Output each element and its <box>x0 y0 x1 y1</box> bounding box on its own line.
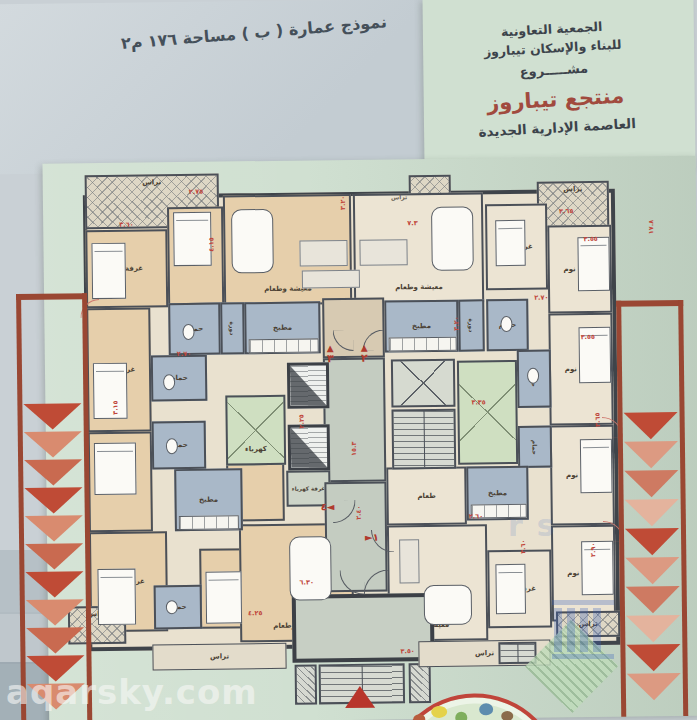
left-border-triangle <box>25 515 83 542</box>
dimension-label: ٧.٣ <box>407 219 418 227</box>
room-label-bathroom: حمام <box>520 428 550 466</box>
right-border-triangle <box>624 441 678 469</box>
dimension-label: ٢.٧٠ <box>534 294 548 302</box>
room-label-bathroom: حمام <box>154 423 205 468</box>
right-border-triangle <box>625 499 679 527</box>
plan-structure <box>288 424 331 471</box>
center-watermark-fragment: rs <box>508 508 569 543</box>
right-border-triangle <box>626 586 680 614</box>
unit-2-entry: ▲ ٢ <box>361 344 368 364</box>
right-border-triangle <box>624 470 678 498</box>
room-dining: طعام <box>386 467 467 526</box>
room-label-toilet: دورة <box>222 304 243 352</box>
left-border-triangle <box>24 487 82 514</box>
bed-icon <box>93 363 128 419</box>
bed-icon <box>495 564 526 614</box>
unit-number: ١ <box>373 532 379 543</box>
room-bathroom: حمام <box>152 421 207 470</box>
left-border-triangle <box>25 543 83 570</box>
entry-arrow-icon: ◄ <box>327 501 335 512</box>
right-border-triangle <box>625 528 679 556</box>
fixture-icon <box>500 316 512 332</box>
left-border-triangle <box>26 599 84 626</box>
plan-structure <box>287 362 330 409</box>
entry-arrow-icon: ► <box>365 532 373 543</box>
plan-structure <box>391 409 456 470</box>
right-border-triangle <box>624 412 678 440</box>
unit-1-entry: ١► <box>365 533 379 543</box>
main-entrance-arrow-icon <box>345 686 375 708</box>
dimension-label: ١٧.٨ <box>647 220 655 234</box>
plan-structure <box>323 358 387 483</box>
plan-structure <box>391 359 456 408</box>
unit-number: ٢ <box>361 352 368 365</box>
dining-table-icon <box>431 206 474 271</box>
fixture-icon <box>166 438 178 454</box>
bed-icon <box>495 220 526 266</box>
kitchen-counter-icon <box>389 337 457 352</box>
right-border-bar <box>616 300 683 307</box>
room-toilet: دورة <box>458 299 485 351</box>
bed-icon <box>94 443 137 496</box>
dimension-label: ١٥.٣ <box>350 442 358 456</box>
dimension-label: ٤.١٥ <box>207 237 215 251</box>
dimension-label: ٣.٥٥ <box>581 333 595 341</box>
room-label-bathroom: حمام <box>153 357 206 400</box>
bed-icon <box>581 541 614 595</box>
plan-structure <box>457 360 518 465</box>
dining-table-icon <box>289 536 332 601</box>
dimension-label: ٣.١٥ <box>111 400 119 414</box>
bed-icon <box>577 237 610 291</box>
right-border-triangle <box>627 673 681 701</box>
watermark-site: aqarsky.com <box>6 672 258 712</box>
room-label-terrace: تراس <box>391 193 407 200</box>
left-border-triangle <box>26 627 84 654</box>
left-border-triangle <box>24 459 82 486</box>
dimension-label: ٣.٦٥ <box>594 413 602 427</box>
room-label-dining: طعام <box>388 469 465 524</box>
room-label-electricity_room: غرفة كهرباء <box>288 472 328 504</box>
left-border-triangle <box>23 403 81 430</box>
room-bathroom: حمام <box>151 355 208 402</box>
room-label-bathroom: حمام <box>170 305 219 354</box>
unit-number: ٣ <box>327 352 334 365</box>
dimension-label: ٣.٣٥ <box>471 398 485 406</box>
room-label-terrace: تراس <box>153 644 285 670</box>
room-electricity: كهرباء <box>225 395 286 466</box>
plan-structure <box>409 663 431 703</box>
dimension-label: ٦.٣٠ <box>300 578 314 586</box>
room-bathroom: حمام <box>168 303 221 356</box>
sofa-icon <box>359 239 407 266</box>
sofa-icon <box>302 270 360 289</box>
left-border-triangle <box>24 431 82 458</box>
right-border-triangle <box>626 644 680 672</box>
plan-structure <box>295 664 317 704</box>
left-border-bar <box>16 293 87 300</box>
dimension-label: ٢.٦٠ <box>469 512 483 520</box>
dimension-label: ٢.٧٠ <box>177 350 191 358</box>
sofa-icon <box>399 539 420 583</box>
bed-icon <box>173 212 212 266</box>
dimension-label: ٣.٦٠ <box>119 221 133 229</box>
dimension-label: ٤.٢٥ <box>248 609 262 617</box>
room-terrace: تراس <box>152 643 286 671</box>
kitchen-counter-icon <box>249 338 319 353</box>
room-bathroom: حمام <box>518 426 553 468</box>
fixture-icon <box>182 324 194 340</box>
dining-table-icon <box>231 209 274 274</box>
bed-icon <box>97 569 136 625</box>
right-border-triangle <box>625 557 679 585</box>
dimension-label: ٢.٢٥ <box>298 414 306 428</box>
kitchen-counter-icon <box>179 515 239 530</box>
dimension-label: ٢.٩٠ <box>589 543 597 557</box>
fixture-icon <box>527 368 539 384</box>
dimension-label: ٣.٢٠ <box>339 196 347 210</box>
dimension-label: ٣.٢٠ <box>452 316 460 330</box>
bed-icon <box>205 571 242 623</box>
fixture-icon <box>166 600 178 614</box>
left-border-triangle <box>25 571 83 598</box>
dimension-label: ٣.٦٥ <box>559 207 573 215</box>
bed-icon <box>580 439 613 493</box>
unit-3-entry: ▲ ٣ <box>327 344 334 364</box>
room-label-electricity: كهرباء <box>227 397 284 464</box>
fixture-icon <box>163 374 175 390</box>
scanned-page: نموذج عمارة ( ب ) مساحة ١٧٦ م٢ الجمعية ا… <box>0 0 697 720</box>
room-label-toilet: دورة <box>460 301 483 349</box>
unit-4-entry: ◄٤ <box>321 502 335 512</box>
right-border-triangle <box>626 615 680 643</box>
room-toilet: دورة <box>220 302 245 354</box>
dimension-label: ٣.٥٥ <box>583 235 597 243</box>
dimension-label: ٢.٧٥ <box>189 188 203 196</box>
dining-table-icon <box>424 585 472 626</box>
dimension-label: ٢.٤٠ <box>355 505 363 519</box>
sofa-icon <box>299 240 347 267</box>
dimension-label: ٣.٥٠ <box>400 647 414 655</box>
bed-icon <box>91 243 126 299</box>
